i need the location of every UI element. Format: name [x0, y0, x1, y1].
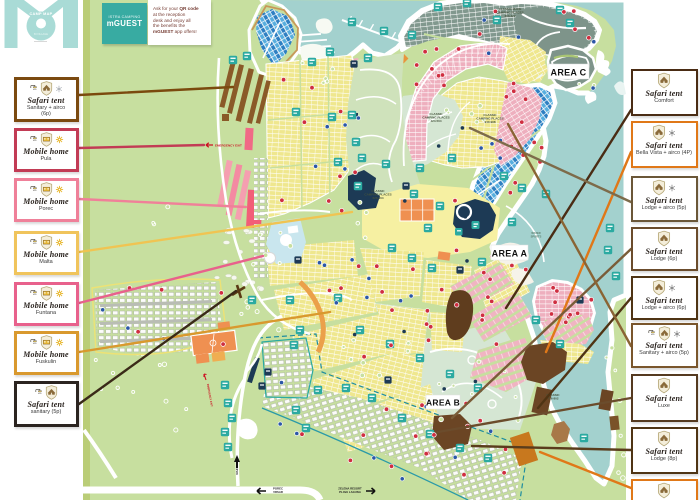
svg-text:303-422: 303-422: [504, 14, 515, 18]
svg-text:940-998: 940-998: [484, 120, 495, 124]
svg-text:EMERGENCY EXIT: EMERGENCY EXIT: [215, 143, 242, 147]
svg-text:WATER: WATER: [531, 231, 540, 235]
svg-text:BI VILLAGE: BI VILLAGE: [34, 32, 48, 36]
svg-text:SPORTS: SPORTS: [531, 234, 542, 238]
svg-text:AREA C: AREA C: [551, 68, 587, 78]
svg-text:AREA A: AREA A: [492, 249, 528, 259]
svg-text:716-802: 716-802: [547, 397, 558, 401]
svg-text:424-504: 424-504: [430, 119, 441, 123]
svg-text:626-904: 626-904: [372, 196, 383, 200]
svg-text:CAMP MAP: CAMP MAP: [29, 12, 52, 16]
svg-text:VRSAR: VRSAR: [273, 490, 283, 494]
svg-text:AREA B: AREA B: [426, 398, 460, 408]
svg-text:PLAVA LAGUNA: PLAVA LAGUNA: [339, 490, 361, 494]
